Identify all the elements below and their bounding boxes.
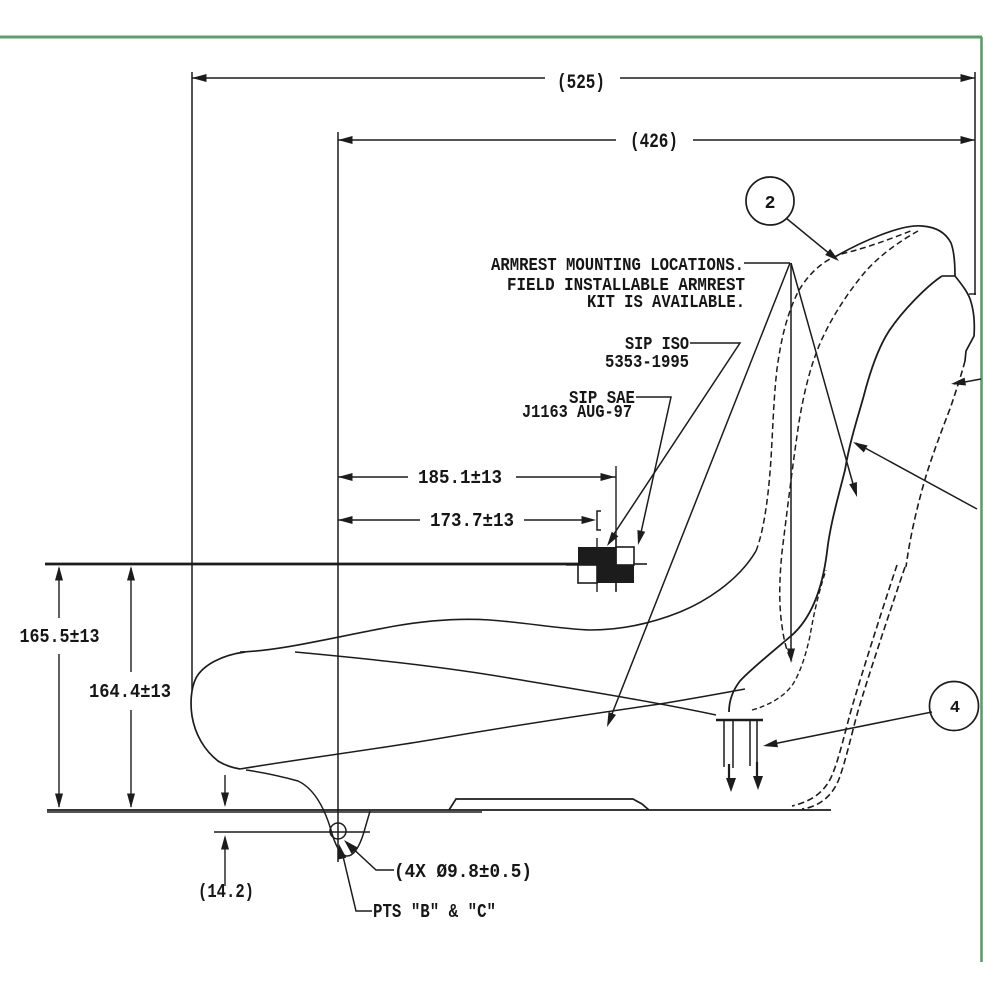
svg-text:PTS "B" & "C": PTS "B" & "C" <box>373 901 496 923</box>
svg-text:5353-1995: 5353-1995 <box>605 353 689 373</box>
svg-text:164.4±13: 164.4±13 <box>89 681 171 703</box>
svg-text:(426): (426) <box>630 131 678 154</box>
svg-text:173.7±13: 173.7±13 <box>430 510 514 532</box>
svg-text:185.1±13: 185.1±13 <box>418 467 502 489</box>
svg-text:165.5±13: 165.5±13 <box>20 626 100 648</box>
svg-text:(14.2): (14.2) <box>198 881 254 903</box>
svg-text:4: 4 <box>950 699 960 718</box>
svg-text:ARMREST MOUNTING LOCATIONS.: ARMREST MOUNTING LOCATIONS. <box>491 256 744 276</box>
svg-text:KIT IS AVAILABLE.: KIT IS AVAILABLE. <box>587 293 745 313</box>
svg-text:(4X Ø9.8±0.5): (4X Ø9.8±0.5) <box>394 861 532 883</box>
svg-text:SIP ISO: SIP ISO <box>625 335 689 355</box>
svg-text:(525): (525) <box>557 72 605 95</box>
svg-text:2: 2 <box>765 194 776 214</box>
svg-text:J1163 AUG-97: J1163 AUG-97 <box>522 403 632 423</box>
